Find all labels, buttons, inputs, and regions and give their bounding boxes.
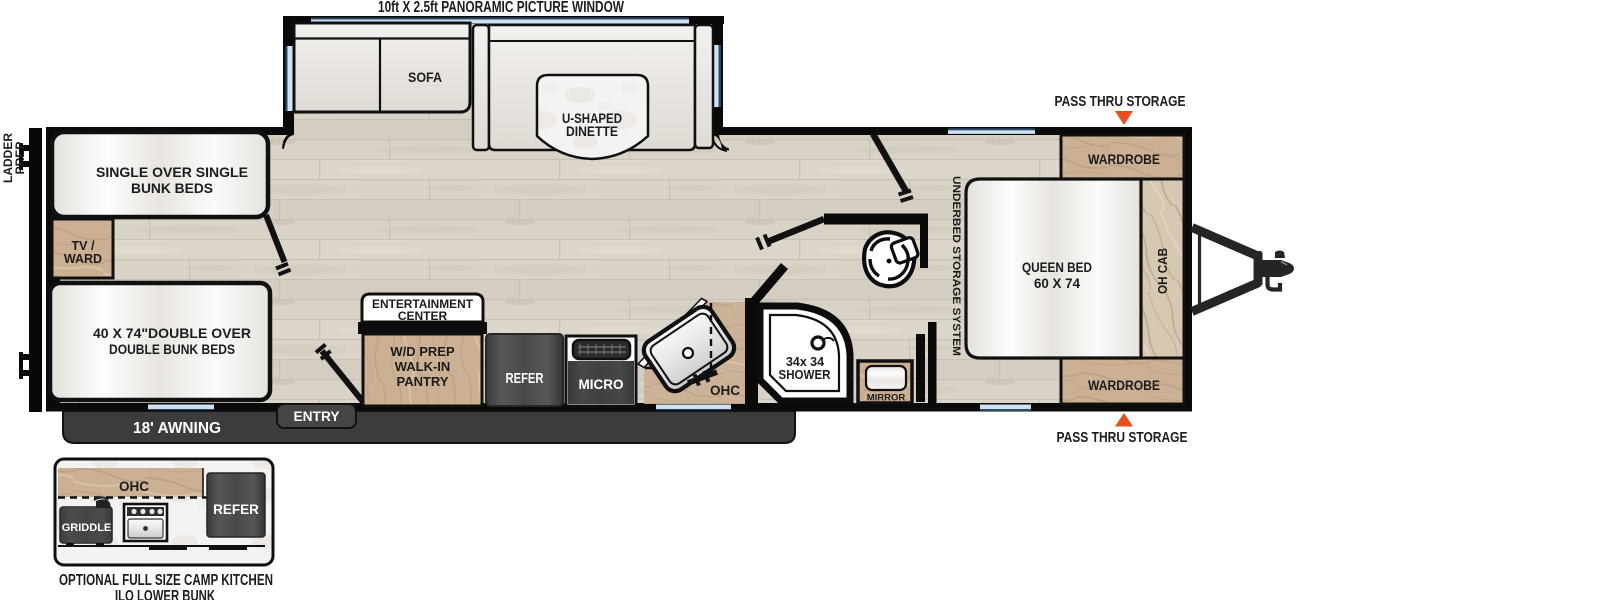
svg-text:MICRO: MICRO [579,377,624,392]
svg-text:SHOWER: SHOWER [779,367,832,382]
svg-text:UNDERBED STORAGE SYSTEM: UNDERBED STORAGE SYSTEM [950,176,962,356]
svg-text:SOFA: SOFA [408,70,442,85]
svg-text:PANTRY: PANTRY [397,374,449,389]
svg-text:OPTIONAL FULL SIZE CAMP KITCHE: OPTIONAL FULL SIZE CAMP KITCHEN [59,572,273,589]
svg-text:WARDROBE: WARDROBE [1088,378,1160,393]
svg-text:WARDROBE: WARDROBE [1088,152,1160,167]
svg-text:ILO LOWER BUNK: ILO LOWER BUNK [115,588,216,600]
svg-text:QUEEN BED: QUEEN BED [1022,260,1092,275]
svg-text:DOUBLE BUNK BEDS: DOUBLE BUNK BEDS [109,341,235,357]
svg-text:WALK-IN: WALK-IN [395,359,451,374]
svg-text:OHC: OHC [119,479,149,494]
svg-text:10ft X 2.5ft PANORAMIC PICTURE: 10ft X 2.5ft PANORAMIC PICTURE WINDOW [378,0,624,16]
svg-text:BUNK BEDS: BUNK BEDS [131,180,213,196]
svg-text:PASS THRU STORAGE: PASS THRU STORAGE [1055,94,1186,110]
svg-text:OHC: OHC [710,383,740,398]
svg-text:W/D PREP: W/D PREP [390,344,455,359]
svg-text:60 X 74: 60 X 74 [1034,276,1080,291]
svg-text:18' AWNING: 18' AWNING [133,420,221,437]
svg-text:CENTER: CENTER [398,309,448,323]
svg-text:REFER: REFER [213,502,259,517]
svg-text:GRIDDLE: GRIDDLE [62,522,112,534]
svg-text:WARD: WARD [64,252,102,266]
svg-text:MIRROR: MIRROR [867,393,906,404]
svg-text:OH CAB: OH CAB [1156,248,1170,294]
svg-text:SINGLE OVER SINGLE: SINGLE OVER SINGLE [96,164,248,180]
svg-text:REFER: REFER [506,371,544,387]
svg-text:40 X 74"DOUBLE OVER: 40 X 74"DOUBLE OVER [93,325,251,341]
svg-text:PASS THRU STORAGE: PASS THRU STORAGE [1057,430,1188,446]
svg-text:ENTRY: ENTRY [294,409,340,424]
svg-text:TV /: TV / [72,239,95,253]
svg-text:DINETTE: DINETTE [566,124,618,139]
